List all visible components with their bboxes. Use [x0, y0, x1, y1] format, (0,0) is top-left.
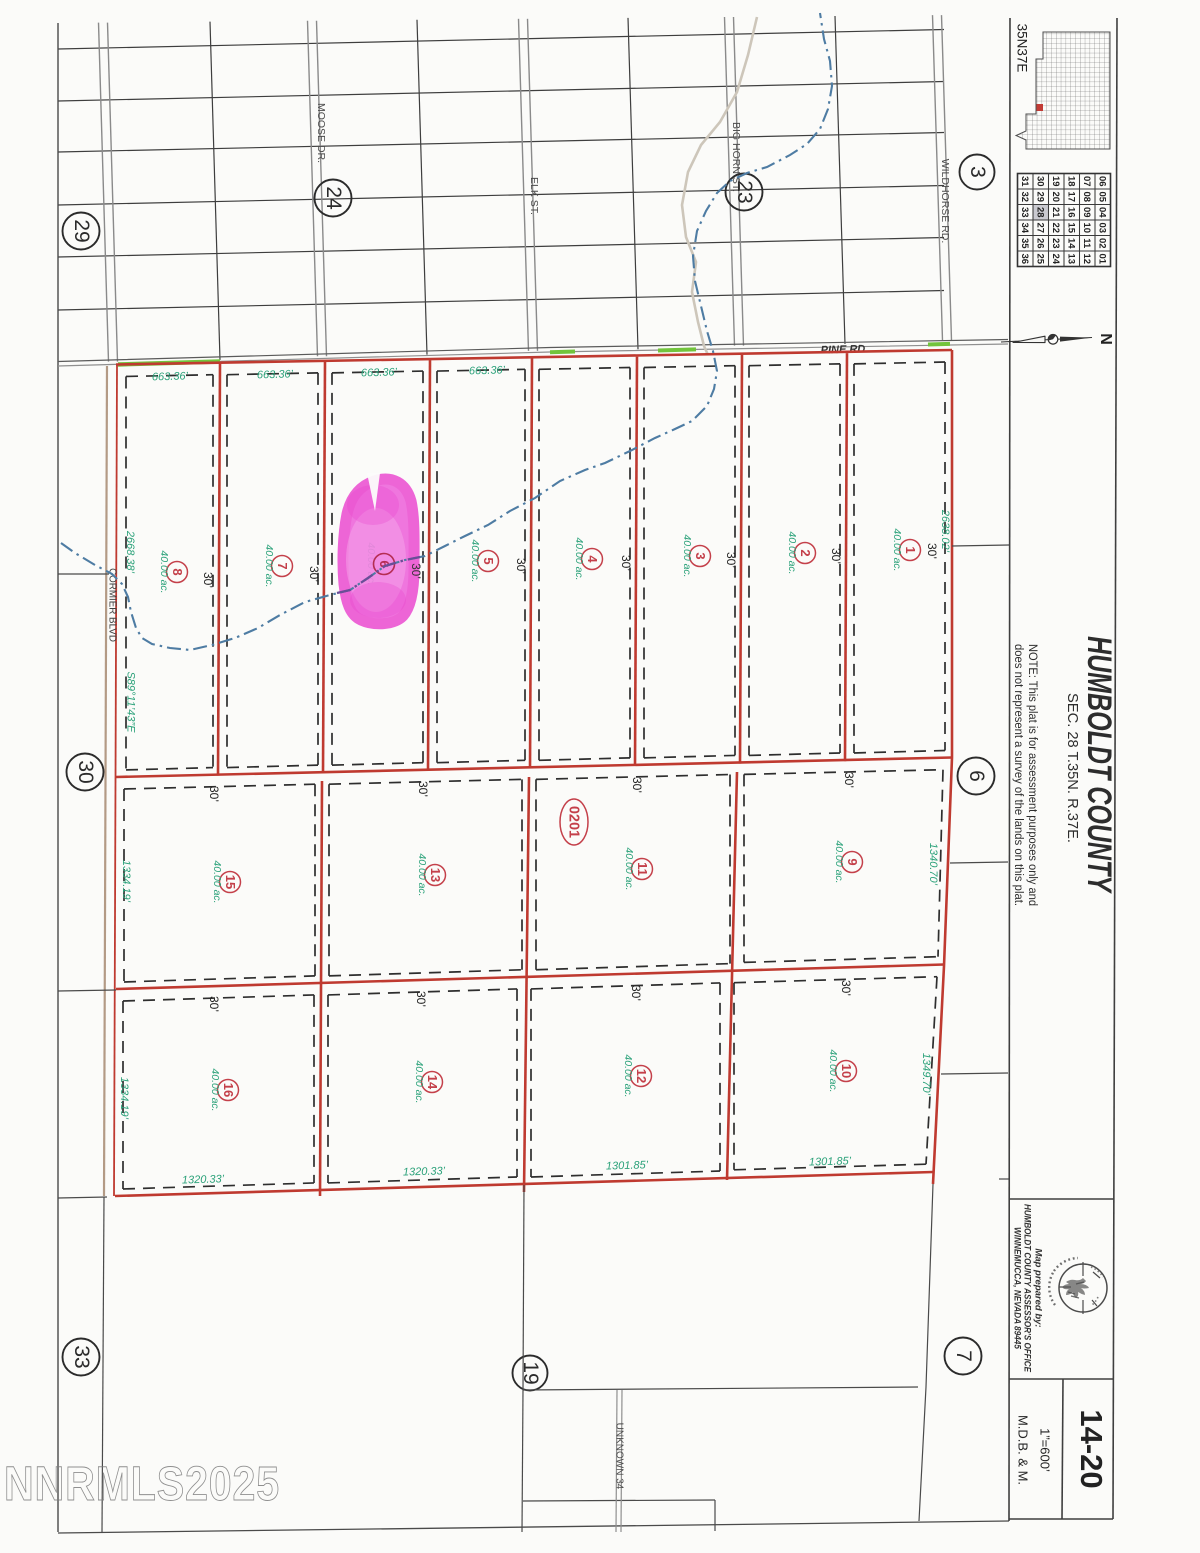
svg-text:40.00 ac.: 40.00 ac.	[469, 539, 481, 582]
svg-text:03: 03	[1097, 222, 1108, 233]
svg-text:3: 3	[693, 552, 708, 559]
svg-text:3: 3	[966, 166, 989, 178]
svg-text:30’: 30’	[925, 543, 939, 559]
svg-text:22: 22	[1050, 222, 1061, 233]
svg-text:30’: 30’	[619, 555, 633, 571]
svg-text:25: 25	[1035, 253, 1046, 264]
svg-text:14: 14	[425, 1075, 440, 1090]
svg-text:1: 1	[903, 546, 918, 553]
svg-text:ELK ST.: ELK ST.	[528, 177, 540, 215]
svg-text:40.00 ac.: 40.00 ac.	[209, 1068, 221, 1111]
svg-text:21: 21	[1050, 207, 1061, 218]
svg-text:NOTE: This plat is for assessm: NOTE: This plat is for assessment purpos…	[1026, 644, 1038, 906]
svg-text:28: 28	[1035, 207, 1046, 218]
svg-text:33: 33	[70, 1345, 93, 1368]
svg-text:33: 33	[1019, 207, 1030, 218]
svg-text:35: 35	[1019, 238, 1030, 249]
svg-text:04: 04	[1097, 207, 1108, 218]
svg-text:30’: 30’	[842, 772, 856, 788]
svg-text:40.00 ac.: 40.00 ac.	[833, 840, 845, 883]
svg-text:663.36’: 663.36’	[257, 368, 294, 381]
svg-text:40.00 ac.: 40.00 ac.	[786, 531, 798, 574]
svg-text:UNKNOWN 34: UNKNOWN 34	[613, 1423, 624, 1490]
svg-text:16: 16	[221, 1083, 236, 1097]
svg-text:9: 9	[845, 858, 860, 865]
svg-text:663.36’: 663.36’	[469, 364, 506, 377]
svg-text:1”=600’: 1”=600’	[1038, 1428, 1053, 1472]
svg-text:10: 10	[1081, 222, 1092, 233]
svg-text:2668.38’: 2668.38’	[124, 530, 136, 574]
svg-text:14: 14	[1066, 238, 1077, 249]
svg-text:30’: 30’	[514, 558, 528, 574]
svg-text:34: 34	[1019, 222, 1030, 233]
svg-text:24: 24	[1050, 253, 1061, 264]
svg-text:32: 32	[1019, 191, 1030, 202]
svg-text:36: 36	[1019, 253, 1030, 264]
svg-text:40.00 ac.: 40.00 ac.	[891, 528, 903, 571]
svg-text:Map prepared by:: Map prepared by:	[1032, 1248, 1043, 1327]
svg-text:S89°11’43”E: S89°11’43”E	[125, 671, 137, 733]
svg-text:30’: 30’	[416, 781, 430, 797]
svg-text:1320.33’: 1320.33’	[403, 1165, 446, 1178]
svg-text:30: 30	[1035, 176, 1046, 187]
svg-text:663.36’: 663.36’	[361, 366, 398, 379]
svg-text:31: 31	[1019, 176, 1030, 187]
svg-text:30’: 30’	[829, 548, 843, 564]
svg-text:N: N	[1097, 333, 1114, 345]
svg-text:07: 07	[1081, 176, 1092, 187]
svg-text:16: 16	[1066, 207, 1077, 218]
svg-text:29: 29	[1035, 191, 1046, 202]
svg-text:0201: 0201	[566, 806, 582, 838]
svg-text:05: 05	[1097, 191, 1108, 202]
svg-text:13: 13	[428, 868, 443, 882]
svg-text:30’: 30’	[724, 552, 738, 568]
svg-text:14-20: 14-20	[1074, 1409, 1109, 1488]
svg-text:40.00 ac.: 40.00 ac.	[211, 860, 223, 903]
svg-text:40.00 ac.: 40.00 ac.	[263, 544, 275, 587]
svg-text:30: 30	[74, 760, 97, 783]
svg-text:663.36’: 663.36’	[152, 370, 189, 383]
svg-text:NNRMLS2025: NNRMLS2025	[4, 1458, 280, 1511]
svg-text:2638.02’: 2638.02’	[939, 509, 951, 553]
svg-text:1334.19’: 1334.19’	[120, 860, 132, 903]
svg-text:30’: 30’	[839, 980, 853, 996]
svg-text:1301.85’: 1301.85’	[809, 1155, 852, 1168]
svg-text:PINE RD: PINE RD	[821, 343, 866, 356]
svg-text:WILDHORSE RD.: WILDHORSE RD.	[939, 159, 951, 244]
svg-text:40.00 ac.: 40.00 ac.	[413, 1060, 425, 1103]
svg-text:11: 11	[635, 862, 650, 876]
svg-text:15: 15	[223, 875, 238, 889]
svg-text:does not represent a survey of: does not represent a survey of the lands…	[1012, 644, 1024, 906]
svg-text:SEC. 28 T.35N. R.37E.: SEC. 28 T.35N. R.37E.	[1064, 693, 1081, 843]
svg-text:02: 02	[1097, 238, 1108, 249]
svg-text:35N37E: 35N37E	[1014, 24, 1029, 73]
svg-text:2: 2	[798, 549, 813, 556]
svg-text:01: 01	[1097, 253, 1108, 264]
svg-text:5: 5	[481, 557, 496, 564]
svg-text:10: 10	[839, 1064, 854, 1078]
svg-text:8: 8	[170, 568, 185, 575]
svg-text:08: 08	[1081, 191, 1092, 202]
svg-text:30’: 30’	[207, 786, 221, 802]
svg-text:7: 7	[275, 562, 290, 569]
svg-text:13: 13	[1066, 253, 1077, 264]
svg-text:WINNEMUCCA, NEVADA 89445: WINNEMUCCA, NEVADA 89445	[1011, 1227, 1022, 1350]
svg-text:30’: 30’	[409, 563, 421, 578]
svg-text:M.D.B. & M.: M.D.B. & M.	[1016, 1415, 1031, 1485]
svg-text:30’: 30’	[414, 991, 428, 1007]
svg-text:40.00 ac.: 40.00 ac.	[416, 853, 428, 896]
svg-text:30’: 30’	[201, 572, 215, 588]
svg-text:HUMBOLDT COUNTY: HUMBOLDT COUNTY	[1080, 636, 1118, 894]
svg-text:40.00 ac.: 40.00 ac.	[158, 550, 170, 593]
svg-text:19: 19	[1050, 176, 1061, 187]
svg-text:06: 06	[1097, 176, 1108, 187]
svg-text:1349.70’: 1349.70’	[920, 1053, 932, 1096]
svg-text:30’: 30’	[207, 996, 221, 1012]
svg-text:12: 12	[634, 1069, 649, 1083]
svg-text:23: 23	[733, 180, 756, 203]
svg-text:20: 20	[1050, 191, 1061, 202]
svg-text:7: 7	[952, 1350, 975, 1362]
svg-text:40.00 ac.: 40.00 ac.	[681, 534, 693, 577]
svg-text:40.00 ac.: 40.00 ac.	[623, 847, 635, 890]
svg-text:19: 19	[519, 1361, 542, 1384]
svg-text:27: 27	[1035, 222, 1046, 233]
svg-text:12: 12	[1081, 253, 1092, 264]
svg-text:26: 26	[1035, 238, 1046, 249]
svg-text:1320.33’: 1320.33’	[182, 1173, 225, 1186]
svg-text:1334.19’: 1334.19’	[118, 1077, 130, 1120]
svg-text:MOOSE DR.: MOOSE DR.	[315, 103, 327, 163]
svg-text:1340.70’: 1340.70’	[927, 843, 939, 886]
svg-text:40.00 ac.: 40.00 ac.	[827, 1049, 839, 1092]
svg-text:40.00 ac.: 40.00 ac.	[622, 1054, 634, 1097]
svg-text:15: 15	[1066, 222, 1077, 233]
svg-text:6: 6	[965, 770, 988, 782]
svg-text:40.00 ac.: 40.00 ac.	[573, 537, 585, 580]
svg-text:23: 23	[1050, 238, 1061, 249]
svg-text:4: 4	[585, 555, 600, 563]
svg-text:1301.85’: 1301.85’	[606, 1159, 649, 1172]
svg-text:11: 11	[1081, 238, 1092, 249]
svg-text:18: 18	[1066, 176, 1077, 187]
svg-text:30’: 30’	[630, 777, 644, 793]
svg-text:09: 09	[1081, 207, 1092, 218]
svg-text:24: 24	[322, 186, 345, 210]
svg-text:30’: 30’	[629, 985, 643, 1001]
svg-text:30’: 30’	[307, 566, 321, 582]
svg-text:17: 17	[1066, 191, 1077, 202]
svg-text:29: 29	[70, 219, 93, 242]
